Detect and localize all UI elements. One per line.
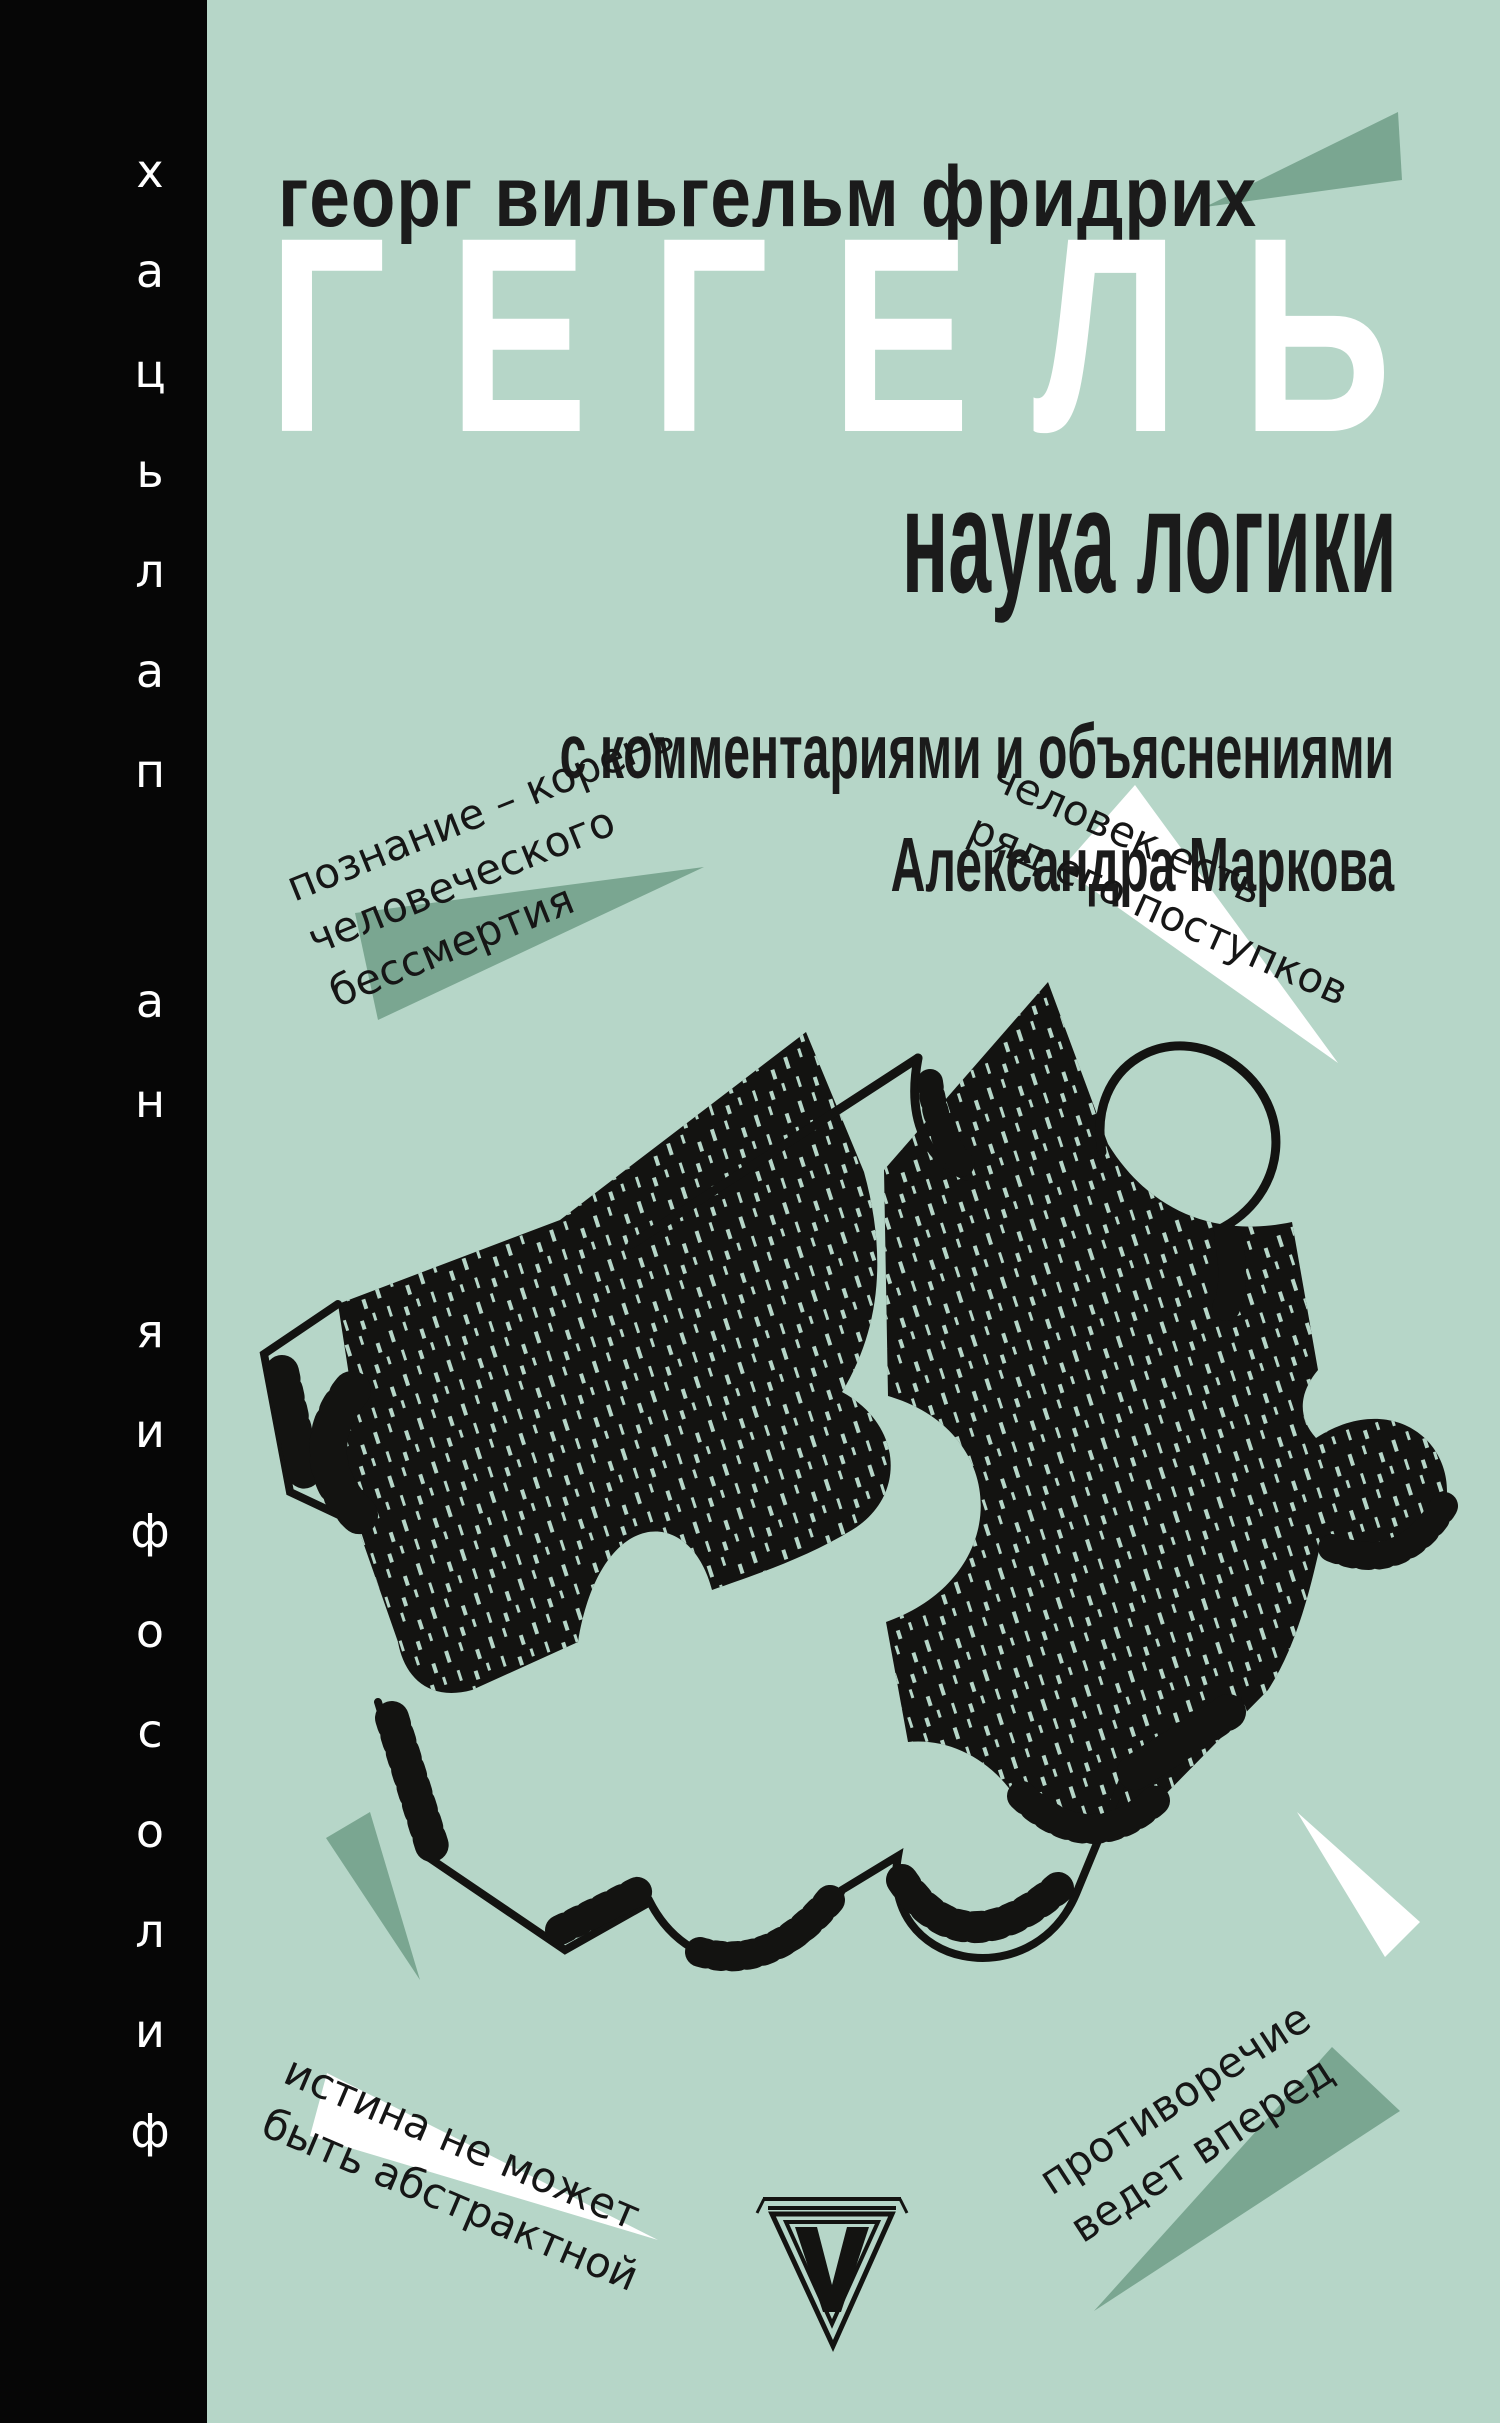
accent-triangle-right-white [1297, 1812, 1420, 1957]
accent-triangle-left [326, 1812, 420, 1980]
book-title: ГЕГЕЛЬ [268, 196, 1454, 474]
puzzle-illustration [264, 982, 1447, 1962]
book-subtitle: наука логики [902, 468, 1397, 616]
publisher-logo-icon [757, 2199, 907, 2346]
book-cover: хацьлапаняифосолиф [0, 0, 1500, 2423]
